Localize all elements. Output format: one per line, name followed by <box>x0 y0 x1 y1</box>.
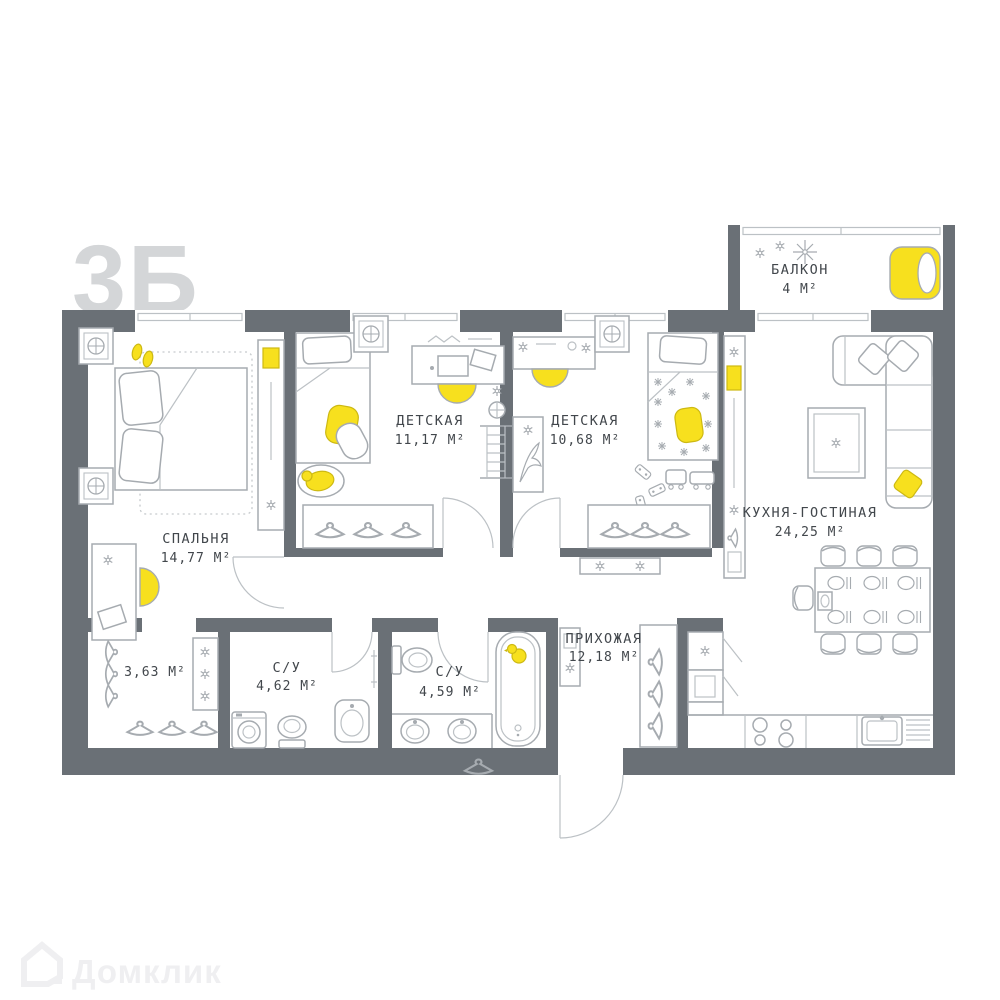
mouse <box>430 366 434 370</box>
pillow <box>302 336 351 364</box>
bedroom-wardrobe <box>258 340 284 530</box>
bathtub <box>496 632 540 746</box>
place-setting <box>828 611 851 624</box>
dog-bed <box>298 465 344 497</box>
floor-plan: 3Б <box>0 0 1000 1000</box>
window-bedroom <box>135 310 245 332</box>
room-area-kitchen: 24,25 М² <box>775 525 846 540</box>
room-area-bedroom: 14,77 М² <box>161 551 232 566</box>
hall-bench <box>580 558 660 574</box>
room-label-balcony: БАЛКОН <box>771 262 829 278</box>
side-table-lamp-icon <box>354 316 388 352</box>
kids2-shelf-column <box>724 336 745 578</box>
kids2-wardrobe <box>588 505 710 548</box>
laptop <box>438 356 468 376</box>
balcony-railing-window <box>740 225 943 237</box>
closet-shelf <box>193 638 218 710</box>
room-label-bedroom: СПАЛЬНЯ <box>162 531 229 547</box>
place-setting <box>864 611 887 624</box>
coffee-table <box>808 408 865 478</box>
room-label-hall: ПРИХОЖАЯ <box>565 631 642 647</box>
place-setting <box>828 577 851 590</box>
watermark-text: Домклик <box>72 953 222 990</box>
pillow <box>118 428 163 484</box>
room-area-balcony: 4 М² <box>782 282 817 297</box>
yellow-pillow <box>674 406 704 443</box>
toilet <box>278 716 306 748</box>
hall-wardrobe <box>640 625 677 747</box>
sink <box>448 719 476 743</box>
room-label-kitchen: КУХНЯ-ГОСТИНАЯ <box>743 505 878 521</box>
dining-chair <box>893 546 917 566</box>
room-label-bath2: С/У <box>436 664 465 680</box>
dining-chair <box>821 546 845 566</box>
nightstand-lamp-icon <box>79 328 113 364</box>
place-setting <box>898 577 921 590</box>
counter-piece <box>688 702 723 715</box>
room-area-bath1: 4,62 М² <box>256 679 318 694</box>
balcony-armchair <box>890 247 940 299</box>
toilet <box>392 646 432 674</box>
pedestal-sink <box>335 700 369 742</box>
nightstand-lamp-icon <box>79 468 113 504</box>
room-area-closet: 3,63 М² <box>124 665 186 680</box>
room-area-kids1: 11,17 М² <box>395 433 466 448</box>
place-setting <box>864 577 887 590</box>
room-label-bath1: С/У <box>273 660 302 676</box>
balcony-door-window <box>755 310 871 332</box>
room-area-bath2: 4,59 М² <box>419 685 481 700</box>
side-table-lamp-icon <box>595 316 629 352</box>
dining-chair <box>857 546 881 566</box>
dining-chair <box>821 634 845 654</box>
room-area-kids2: 10,68 М² <box>550 433 621 448</box>
sink <box>401 719 429 743</box>
pillow <box>659 335 707 364</box>
washing-machine <box>232 712 266 748</box>
room-label-kids2: ДЕТСКАЯ <box>551 413 618 429</box>
dolphin-poster <box>513 417 543 492</box>
room-label-kids1: ДЕТСКАЯ <box>396 413 463 429</box>
dining-chair <box>793 586 813 610</box>
place-setting <box>898 611 921 624</box>
floor-plan-svg: 3Б <box>0 0 1000 1000</box>
basketball <box>489 402 505 418</box>
room-area-hall: 12,18 М² <box>569 650 640 665</box>
dining-chair <box>893 634 917 654</box>
dining-chair <box>857 634 881 654</box>
pillow <box>118 370 163 426</box>
kids2-bed <box>648 333 718 460</box>
